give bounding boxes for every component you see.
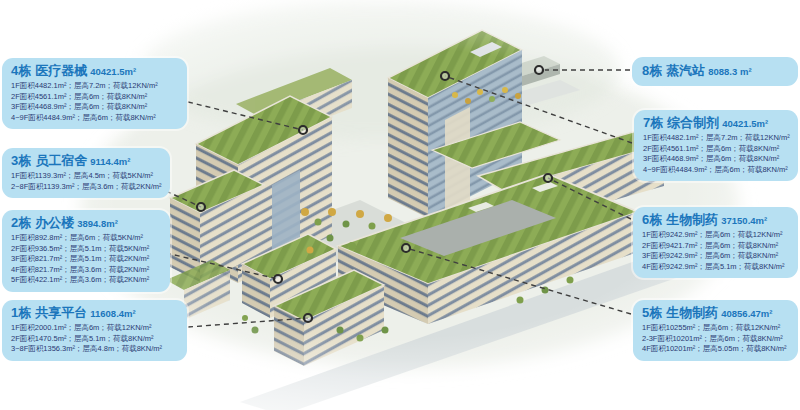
building-number: 7栋: [643, 115, 663, 130]
callout-title: 8栋蒸汽站8088.3 m²: [642, 63, 788, 80]
floor-spec: 1F面积2000.1m²；层高6m；荷载12KN/m²: [11, 323, 179, 334]
callout-title: 2栋办公楼3894.8m²: [11, 215, 162, 232]
floor-spec: 1F面积10255m²；层高6m；荷载12KN/m²: [642, 323, 790, 334]
callout-title: 7栋综合制剂40421.5m²: [643, 115, 790, 132]
building-name: 办公楼: [35, 215, 74, 230]
marker-icon-building-5: [402, 244, 410, 252]
floor-spec: 4~9F面积4484.9m²；层高6m；荷载8KN/m²: [11, 113, 179, 124]
floor-spec: 1F面积9242.9m²；层高6m；荷载12KN/m²: [642, 230, 790, 241]
marker-icon-building-1: [304, 314, 312, 322]
floor-spec: 4F面积9242.9m²；层高5.1m；荷载8KN/m²: [642, 262, 790, 273]
floor-spec: 1F面积4482.1m²；层高7.2m；荷载12KN/m²: [11, 81, 179, 92]
floor-spec: 1F面积4482.1m²；层高7.2m；荷载12KN/m²: [643, 133, 790, 144]
callout-title: 4栋医疗器械40421.5m²: [11, 63, 179, 80]
building-name: 蒸汽站: [666, 63, 705, 78]
callout-details: 1F面积2000.1m²；层高6m；荷载12KN/m² 2F面积1470.5m²…: [11, 323, 179, 355]
callout-building-4: 4栋医疗器械40421.5m² 1F面积4482.1m²；层高7.2m；荷载12…: [2, 58, 187, 129]
callout-building-8: 8栋蒸汽站8088.3 m²: [632, 57, 798, 86]
floor-spec: 5F面积422.1m²；层高3.6m；荷载2KN/m²: [11, 275, 162, 286]
building-area: 40421.5m²: [722, 118, 768, 129]
building-name: 员工宿舍: [35, 153, 87, 168]
callout-details: 1F面积892.8m²；层高6m；荷载5KN/m² 2F面积936.5m²；层高…: [11, 233, 162, 286]
callout-title: 5栋生物制药40856.47m²: [642, 305, 790, 322]
building-name: 医疗器械: [35, 63, 87, 78]
marker-icon-building-7: [441, 72, 449, 80]
building-area: 40856.47m²: [721, 308, 772, 319]
building-name: 共享平台: [35, 305, 87, 320]
marker-icon-building-3: [197, 203, 205, 211]
callout-title: 6栋生物制药37150.4m²: [642, 212, 790, 229]
callout-building-2: 2栋办公楼3894.8m² 1F面积892.8m²；层高6m；荷载5KN/m² …: [2, 210, 170, 292]
building-number: 3栋: [11, 153, 31, 168]
floor-spec: 2F面积936.5m²；层高5.1m；荷载5KN/m²: [11, 244, 162, 255]
building-number: 5栋: [642, 305, 662, 320]
building-area: 11608.4m²: [90, 308, 135, 319]
building-number: 4栋: [11, 63, 31, 78]
building-area: 37150.4m²: [721, 215, 767, 226]
floor-spec: 2F面积9421.7m²；层高6m；荷载8KN/m²: [642, 241, 790, 252]
building-name: 生物制药: [666, 305, 718, 320]
marker-icon-building-4: [299, 126, 307, 134]
floor-spec: 2F面积4561.1m²；层高6m；荷载8KN/m²: [11, 92, 179, 103]
callout-details: 1F面积4482.1m²；层高7.2m；荷载12KN/m² 2F面积4561.1…: [11, 81, 179, 123]
building-area: 40421.5m²: [90, 66, 136, 77]
floor-spec: 2-3F面积10201m²；层高6m；荷载8KN/m²: [642, 334, 790, 345]
floor-spec: 2~8F面积1139.3m²；层高3.6m；荷载2KN/m²: [11, 182, 162, 193]
callout-details: 1F面积10255m²；层高6m；荷载12KN/m² 2-3F面积10201m²…: [642, 323, 790, 355]
floor-spec: 2F面积1470.5m²；层高5.1m；荷载8KN/m²: [11, 334, 179, 345]
floor-spec: 4F面积10201m²；层高5.05m；荷载8KN/m²: [642, 344, 790, 355]
callout-building-7: 7栋综合制剂40421.5m² 1F面积4482.1m²；层高7.2m；荷载12…: [634, 110, 798, 181]
floor-spec: 3F面积4468.9m²；层高6m；荷载8KN/m²: [11, 102, 179, 113]
callout-building-6: 6栋生物制药37150.4m² 1F面积9242.9m²；层高6m；荷载12KN…: [633, 207, 798, 278]
callout-building-1: 1栋共享平台11608.4m² 1F面积2000.1m²；层高6m；荷载12KN…: [2, 300, 187, 361]
building-name: 综合制剂: [667, 115, 719, 130]
callout-building-5: 5栋生物制药40856.47m² 1F面积10255m²；层高6m；荷载12KN…: [633, 300, 798, 361]
floor-spec: 3F面积821.7m²；层高5.1m；荷载2KN/m²: [11, 254, 162, 265]
floor-spec: 3F面积9242.9m²；层高6m；荷载8KN/m²: [642, 251, 790, 262]
callout-details: 1F面积4482.1m²；层高7.2m；荷载12KN/m² 2F面积4561.1…: [643, 133, 790, 175]
building-area: 8088.3 m²: [708, 66, 751, 77]
floor-spec: 1F面积892.8m²；层高6m；荷载5KN/m²: [11, 233, 162, 244]
callout-building-3: 3栋员工宿舍9114.4m² 1F面积1139.3m²；层高4.5m；荷载5KN…: [2, 148, 170, 198]
marker-icon-building-2: [274, 275, 282, 283]
building-number: 8栋: [642, 63, 662, 78]
callout-title: 3栋员工宿舍9114.4m²: [11, 153, 162, 170]
marker-icon-building-6: [544, 174, 552, 182]
floor-spec: 3F面积4468.9m²；层高6m；荷载8KN/m²: [643, 154, 790, 165]
callout-details: 1F面积1139.3m²；层高4.5m；荷载5KN/m² 2~8F面积1139.…: [11, 171, 162, 192]
building-name: 生物制药: [666, 212, 718, 227]
building-number: 1栋: [11, 305, 31, 320]
building-number: 2栋: [11, 215, 31, 230]
callout-details: 1F面积9242.9m²；层高6m；荷载12KN/m² 2F面积9421.7m²…: [642, 230, 790, 272]
building-number: 6栋: [642, 212, 662, 227]
floor-spec: 1F面积1139.3m²；层高4.5m；荷载5KN/m²: [11, 171, 162, 182]
building-area: 3894.8m²: [77, 218, 118, 229]
floor-spec: 4F面积821.7m²；层高3.6m；荷载2KN/m²: [11, 265, 162, 276]
floor-spec: 3~8F面积1356.3m²；层高4.8m；荷载8KN/m²: [11, 344, 179, 355]
floor-spec: 4~9F面积4484.9m²；层高6m；荷载8KN/m²: [643, 165, 790, 176]
building-area: 9114.4m²: [90, 156, 130, 167]
marker-icon-building-8: [535, 66, 543, 74]
floor-spec: 2F面积4561.1m²；层高6m；荷载8KN/m²: [643, 144, 790, 155]
callout-title: 1栋共享平台11608.4m²: [11, 305, 179, 322]
